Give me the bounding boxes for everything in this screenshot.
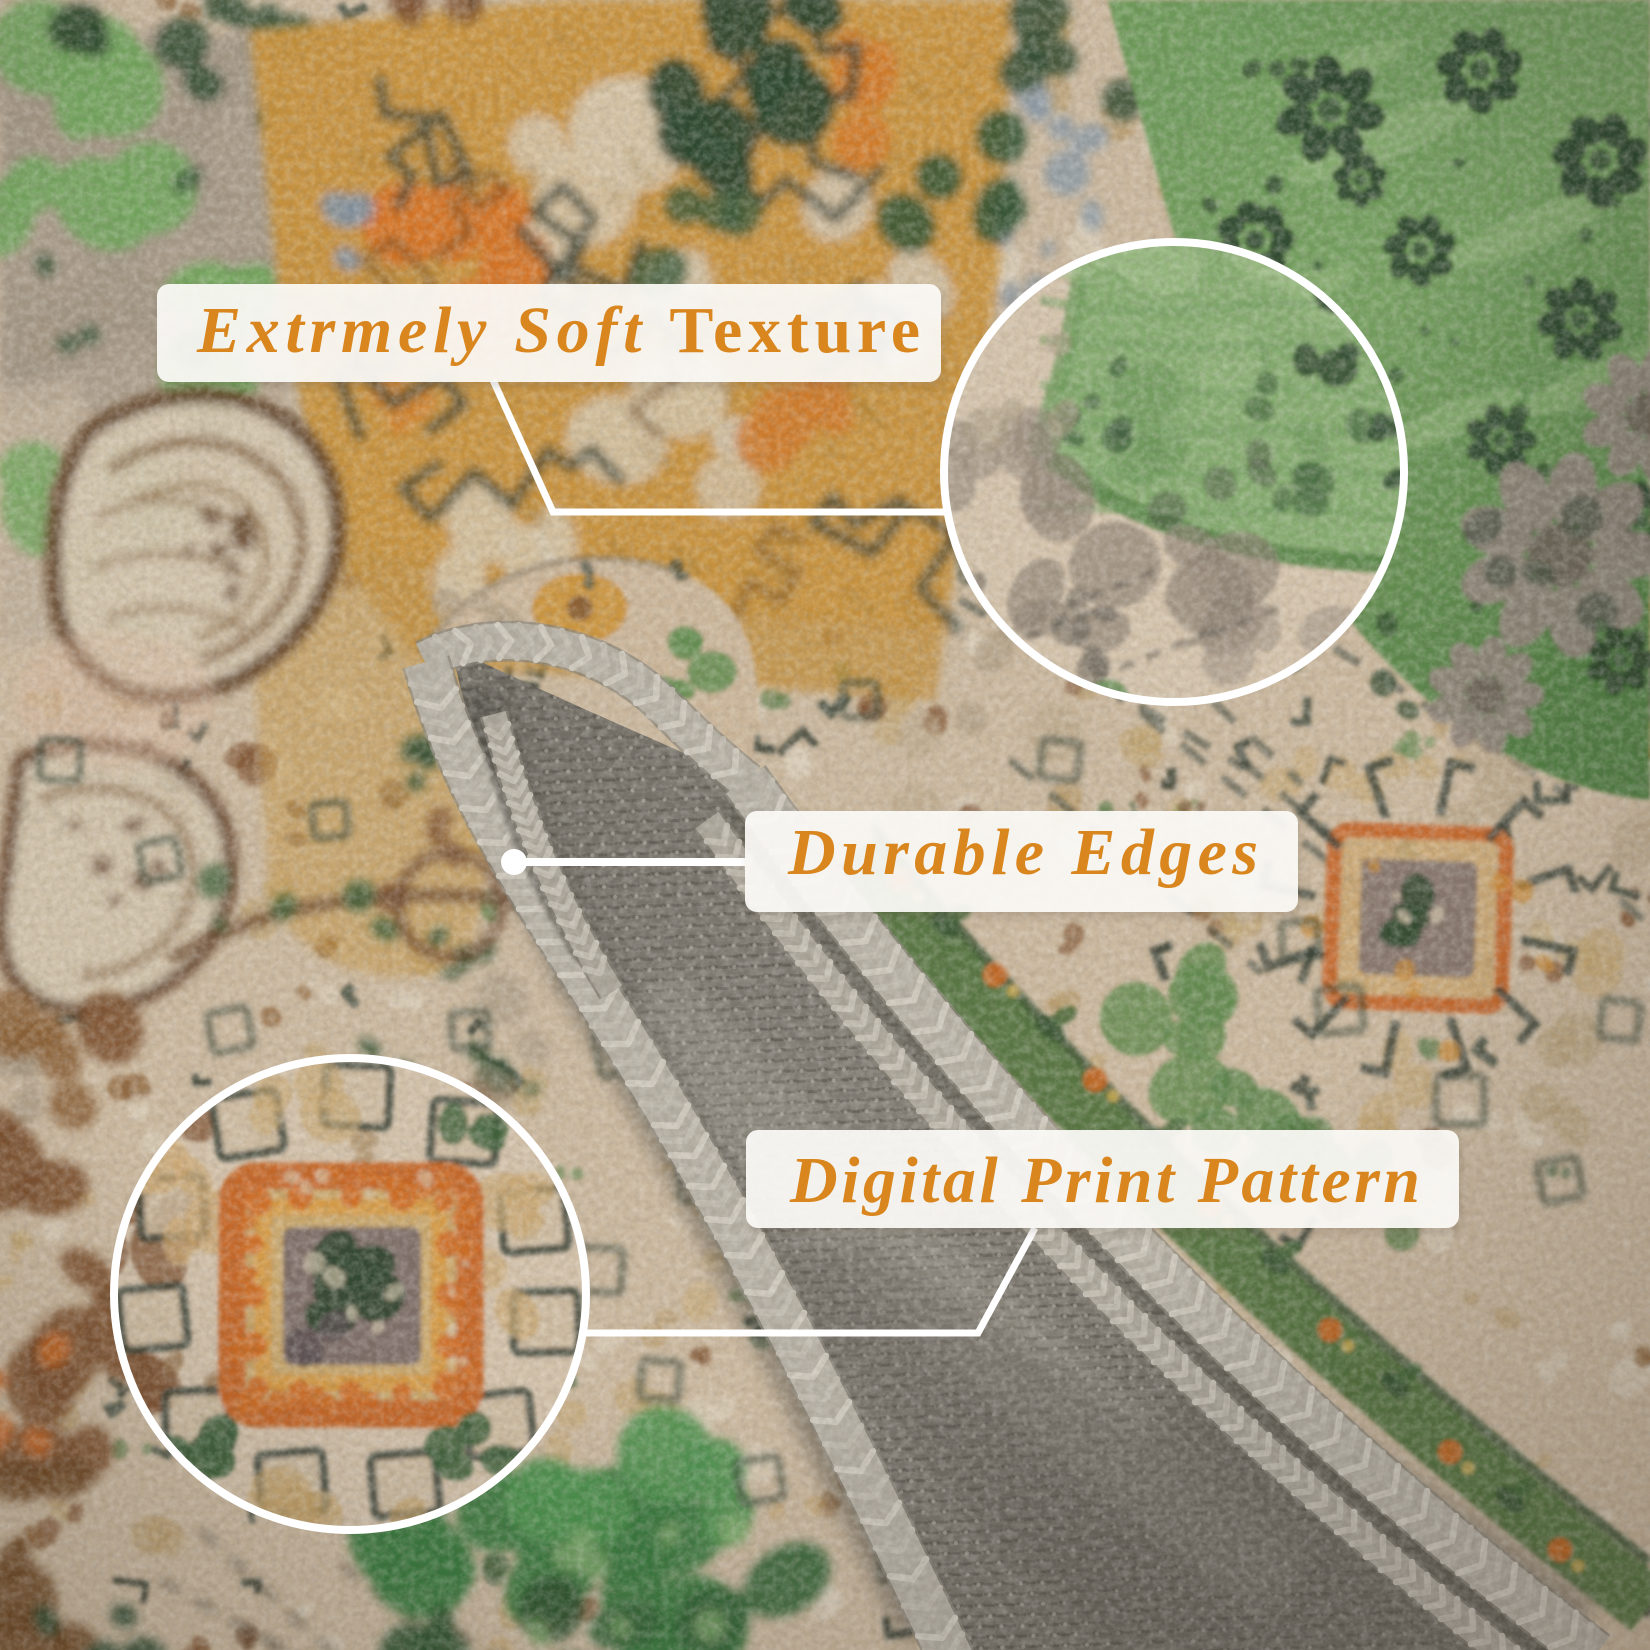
svg-text:Digital Print Pattern: Digital Print Pattern — [789, 1144, 1420, 1217]
svg-text:Durable Edges: Durable Edges — [787, 816, 1258, 889]
